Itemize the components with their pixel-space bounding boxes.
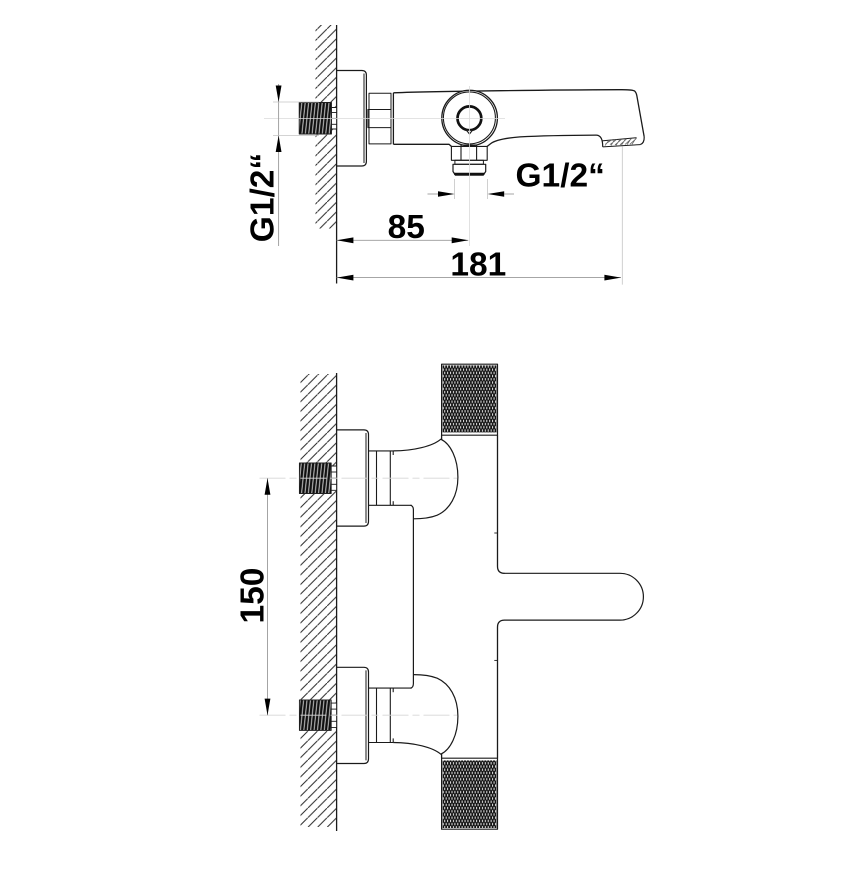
svg-text:85: 85 bbox=[388, 209, 425, 246]
svg-text:150: 150 bbox=[235, 568, 272, 624]
svg-text:G1/2“: G1/2“ bbox=[516, 157, 605, 194]
svg-text:181: 181 bbox=[450, 246, 506, 283]
svg-text:G1/2“: G1/2“ bbox=[245, 153, 282, 242]
